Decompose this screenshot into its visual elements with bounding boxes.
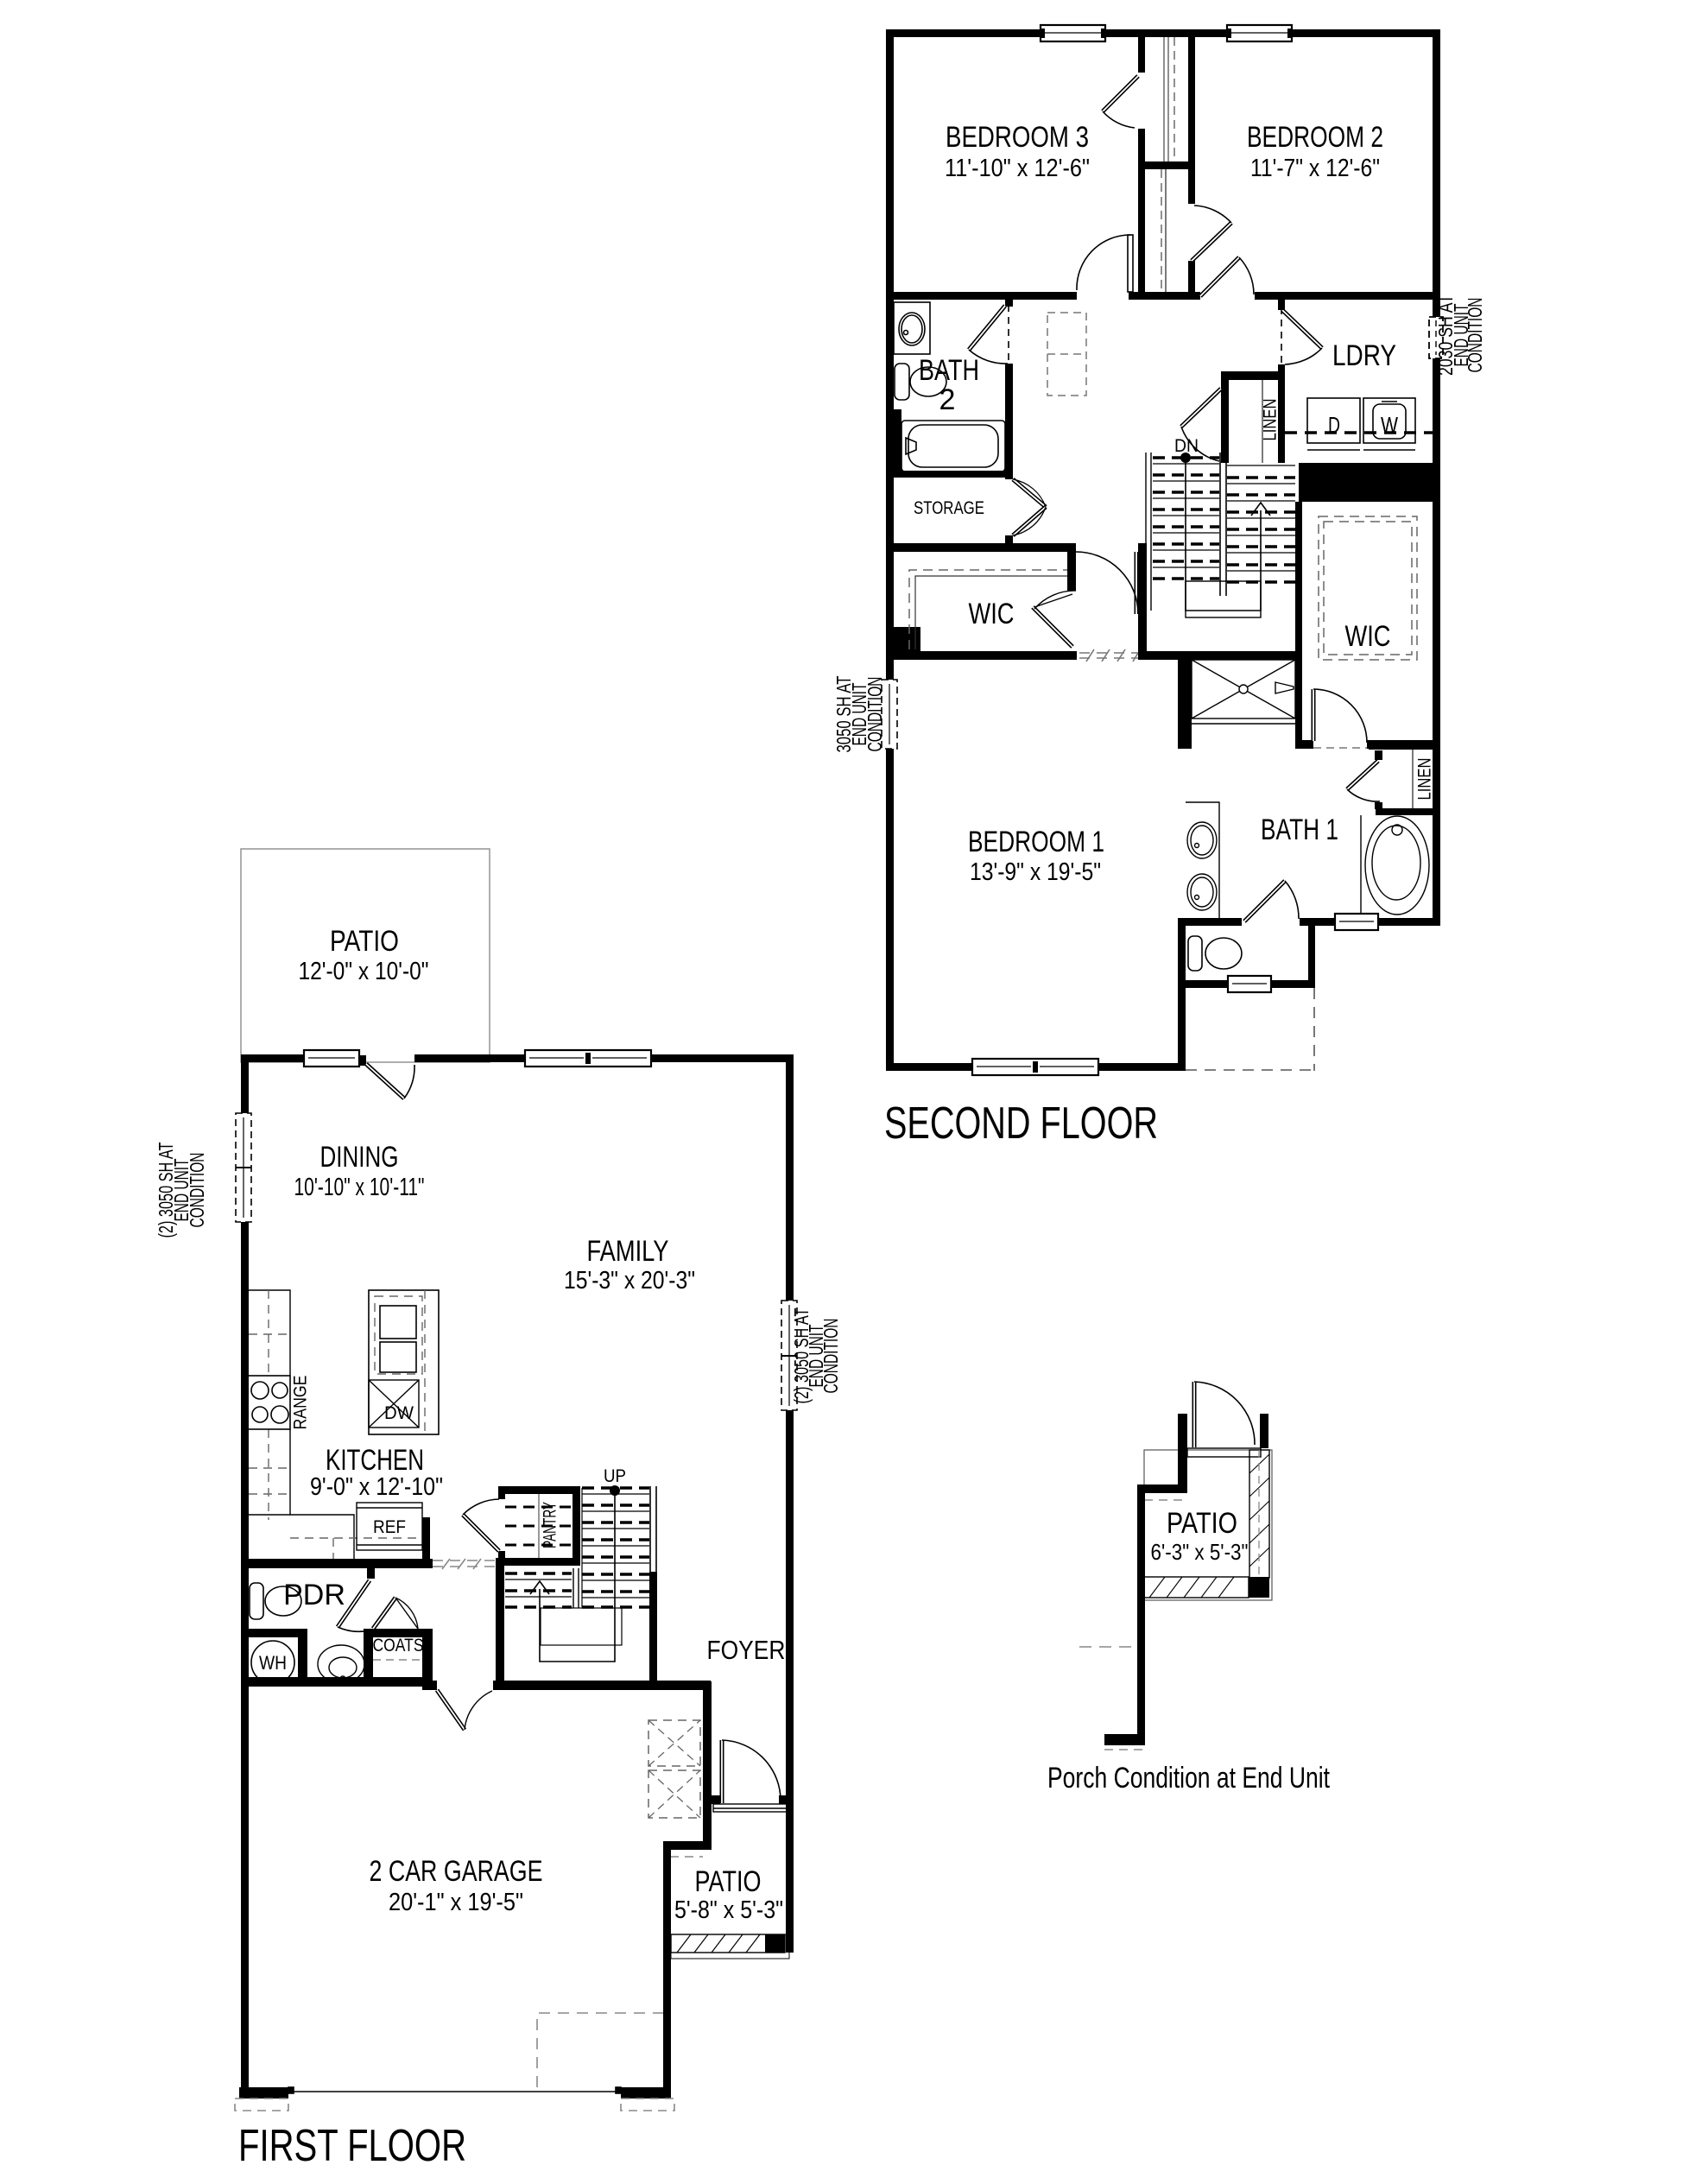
svg-text:2 CAR GARAGE: 2 CAR GARAGE — [370, 1855, 543, 1888]
svg-text:PATIO: PATIO — [1167, 1507, 1237, 1540]
svg-text:STORAGE: STORAGE — [914, 498, 984, 518]
svg-text:PANTRY: PANTRY — [541, 1502, 560, 1548]
svg-text:LDRY: LDRY — [1332, 339, 1396, 372]
svg-text:REF: REF — [373, 1517, 406, 1537]
svg-text:RANGE: RANGE — [291, 1376, 311, 1430]
svg-text:FIRST FLOOR: FIRST FLOOR — [238, 2121, 466, 2171]
svg-text:6'-3" x 5'-3": 6'-3" x 5'-3" — [1151, 1539, 1249, 1565]
svg-text:UP: UP — [604, 1466, 626, 1486]
svg-text:20'-1" x 19'-5": 20'-1" x 19'-5" — [389, 1889, 523, 1916]
svg-text:2: 2 — [939, 383, 956, 416]
svg-text:BEDROOM 1: BEDROOM 1 — [968, 826, 1104, 858]
svg-text:BATH 1: BATH 1 — [1261, 813, 1338, 846]
svg-text:KITCHEN: KITCHEN — [326, 1444, 424, 1477]
svg-text:11'-7" x 12'-6": 11'-7" x 12'-6" — [1250, 155, 1380, 182]
svg-text:CONDITION: CONDITION — [819, 1319, 842, 1394]
svg-text:BATH: BATH — [919, 354, 979, 387]
svg-text:BEDROOM 3: BEDROOM 3 — [946, 121, 1089, 154]
svg-text:5'-8" x 5'-3": 5'-8" x 5'-3" — [674, 1896, 783, 1924]
svg-text:LINEN: LINEN — [1261, 399, 1281, 441]
svg-text:BEDROOM 2: BEDROOM 2 — [1247, 121, 1383, 154]
svg-text:15'-3" x 20'-3": 15'-3" x 20'-3" — [564, 1267, 695, 1295]
svg-text:10'-10" x 10'-11": 10'-10" x 10'-11" — [294, 1174, 425, 1201]
svg-text:FAMILY: FAMILY — [587, 1235, 669, 1268]
svg-text:CONDITION: CONDITION — [863, 677, 886, 752]
svg-text:PDR: PDR — [283, 1579, 345, 1611]
svg-text:CONDITION: CONDITION — [1464, 298, 1486, 373]
svg-text:CONDITION: CONDITION — [186, 1153, 208, 1228]
svg-text:COATS: COATS — [373, 1636, 424, 1655]
svg-text:WIC: WIC — [1345, 620, 1391, 653]
svg-text:13'-9" x 19'-5": 13'-9" x 19'-5" — [970, 858, 1101, 886]
svg-text:Porch Condition at End Unit: Porch Condition at End Unit — [1047, 1762, 1330, 1795]
svg-text:WIC: WIC — [969, 598, 1015, 630]
svg-text:11'-10" x 12'-6": 11'-10" x 12'-6" — [945, 155, 1090, 182]
svg-text:FOYER: FOYER — [707, 1635, 786, 1665]
svg-text:9'-0" x 12'-10": 9'-0" x 12'-10" — [310, 1473, 443, 1501]
svg-text:WH: WH — [259, 1652, 287, 1674]
svg-text:DINING: DINING — [320, 1141, 399, 1174]
svg-text:DW: DW — [384, 1403, 414, 1423]
svg-text:LINEN: LINEN — [1415, 758, 1435, 801]
svg-text:12'-0" x 10'-0": 12'-0" x 10'-0" — [299, 958, 429, 985]
svg-text:PATIO: PATIO — [695, 1865, 762, 1898]
svg-text:PATIO: PATIO — [330, 925, 399, 958]
svg-text:SECOND FLOOR: SECOND FLOOR — [884, 1098, 1158, 1149]
